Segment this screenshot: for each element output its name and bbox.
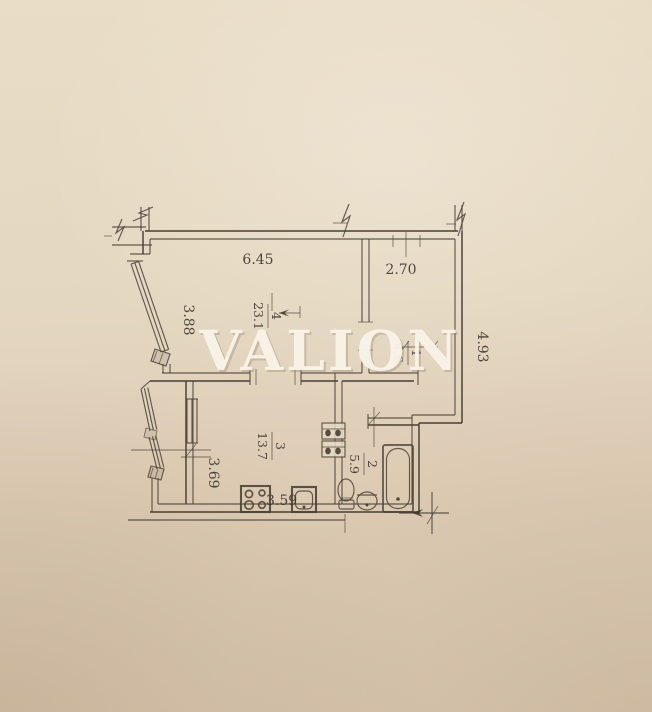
floor-plan-drawing: 6.45 2.70 3.88 4.93 3.69 3.59 4 23.1 1 4… <box>0 0 652 712</box>
wall-break-icon <box>116 219 124 241</box>
room-label-kitchen: 3 13.7 <box>255 432 288 460</box>
watermark: VALION VALION <box>198 318 463 385</box>
bathtub-icon <box>383 445 413 512</box>
room-area: 13.7 <box>255 432 270 460</box>
living-room-window <box>127 231 170 373</box>
watermark-text: VALION <box>198 318 461 383</box>
washbasin-icon <box>357 492 377 510</box>
dimension-left-window: 3.88 <box>180 304 196 335</box>
top-wall <box>104 202 465 257</box>
room-label-bathroom: 2 5.9 <box>347 453 380 475</box>
bathroom-north-wall <box>368 407 419 447</box>
room-number: 2 <box>365 460 380 468</box>
dimension-kitchen-bottom: 3.59 <box>266 493 297 509</box>
dimension-right-wall: 4.93 <box>474 331 490 362</box>
wall-break-icon <box>457 202 465 236</box>
room-number: 3 <box>273 442 288 450</box>
dimension-top-wall: 6.45 <box>242 252 273 268</box>
balcony-glazing <box>141 381 164 512</box>
dimension-hall-top: 2.70 <box>385 262 416 278</box>
floor-plan-photo: 6.45 2.70 3.88 4.93 3.69 3.59 4 23.1 1 4… <box>0 0 652 712</box>
dimension-kitchen-side: 3.69 <box>205 457 221 488</box>
wall-break-icon <box>342 204 350 237</box>
room-area: 5.9 <box>347 454 362 474</box>
wall-break-icon <box>133 207 153 221</box>
